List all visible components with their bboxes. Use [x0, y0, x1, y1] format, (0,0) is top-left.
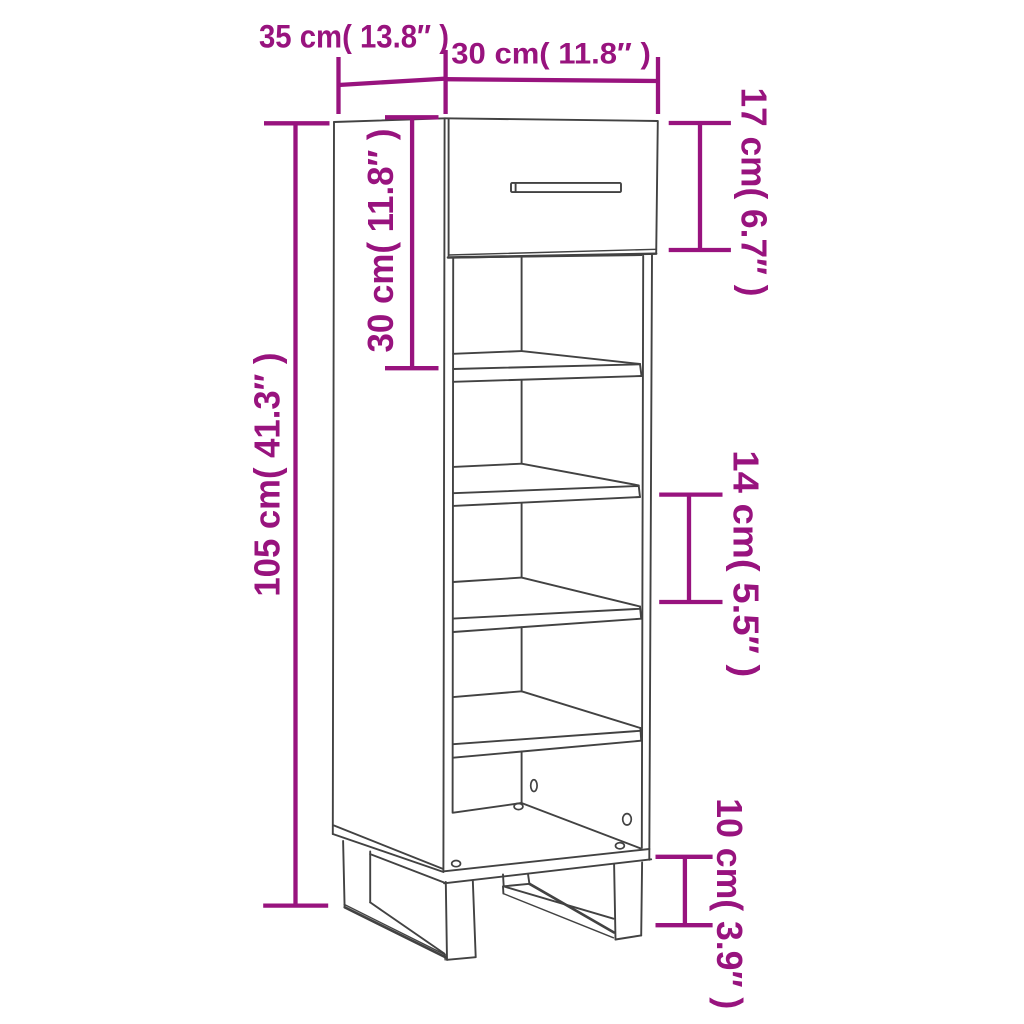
svg-text:10 cm( 3.9″ ): 10 cm( 3.9″ ) — [709, 798, 750, 1009]
svg-text:30 cm( 11.8″ ): 30 cm( 11.8″ ) — [451, 38, 651, 71]
svg-text:17 cm( 6.7″ ): 17 cm( 6.7″ ) — [734, 88, 775, 297]
svg-text:14 cm( 5.5″ ): 14 cm( 5.5″ ) — [726, 450, 767, 677]
svg-text:35 cm( 13.8″ ): 35 cm( 13.8″ ) — [259, 18, 449, 54]
svg-text:105 cm( 41.3″ ): 105 cm( 41.3″ ) — [246, 353, 287, 597]
svg-text:30 cm( 11.8″ ): 30 cm( 11.8″ ) — [360, 129, 401, 353]
